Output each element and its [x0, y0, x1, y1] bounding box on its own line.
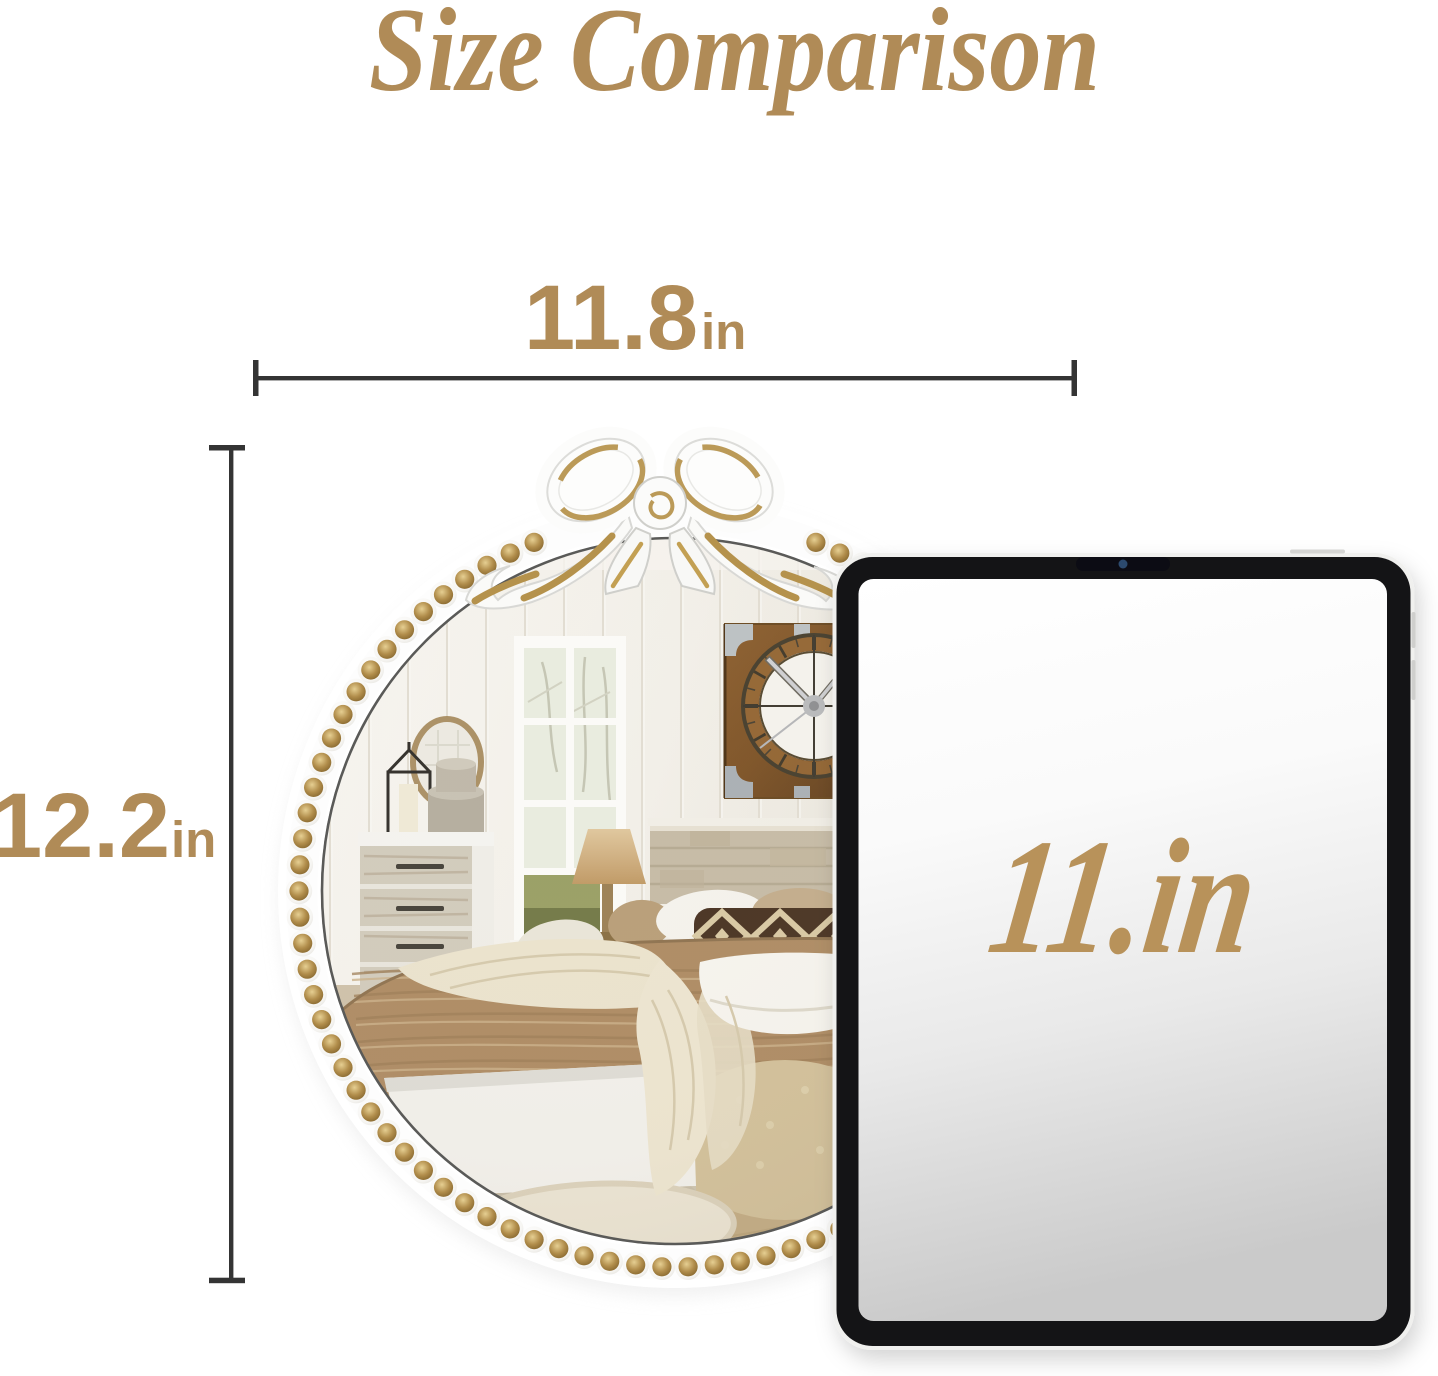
svg-text:in: in [701, 303, 746, 360]
svg-text:12.2: 12.2 [0, 775, 170, 877]
svg-text:Size Comparison: Size Comparison [369, 0, 1100, 116]
svg-text:in: in [171, 811, 216, 868]
svg-text:11.8: 11.8 [524, 267, 698, 369]
svg-text:11.in: 11.in [980, 805, 1268, 988]
